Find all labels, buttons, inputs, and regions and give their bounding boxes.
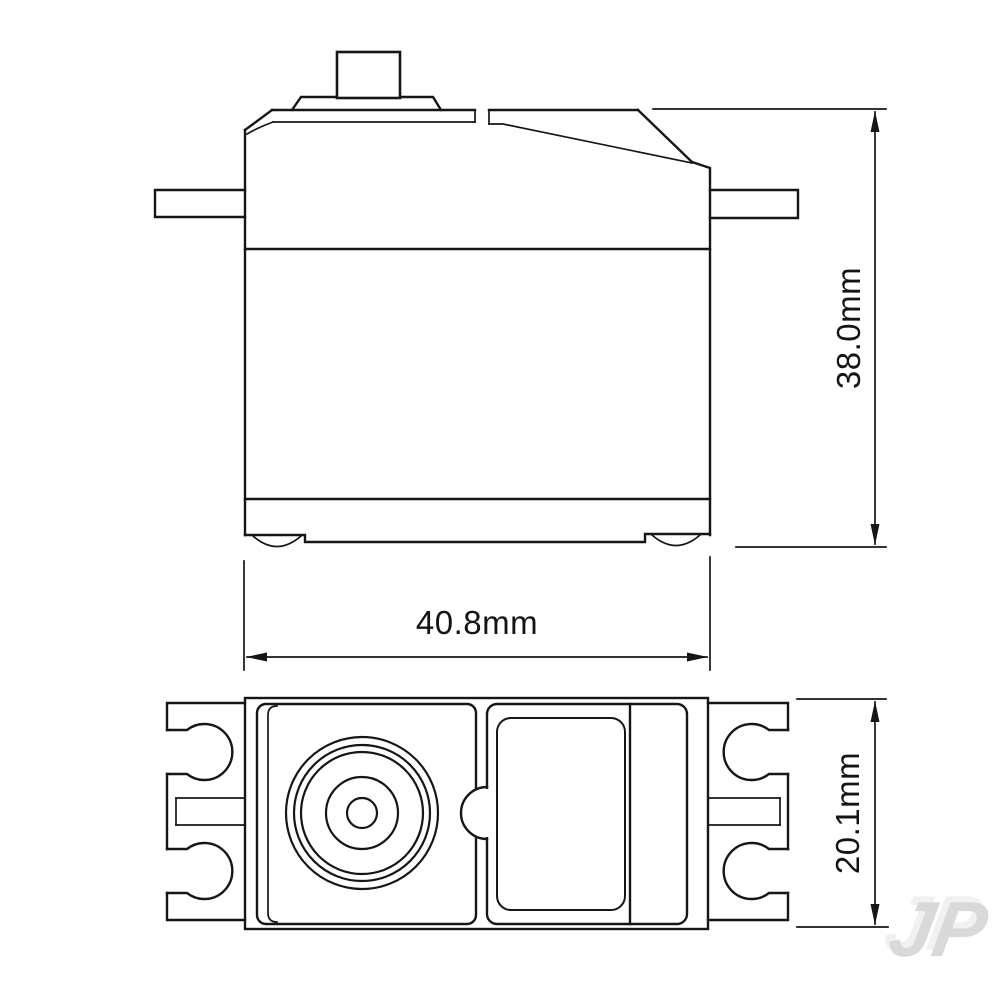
screw-keyhole-bottom-left [167,843,232,899]
dimension-label-depth: 20.1mm [829,752,866,874]
drawing-canvas: 38.0mm 40.8mm 20.1mm JP JP [0,0,1000,1000]
label-recess [497,718,625,910]
flange-right [708,703,788,920]
watermark-logo: JP JP [877,880,995,973]
mounting-tab-left [155,190,245,217]
flange-left-bottom [167,893,245,920]
body-bottom-edge [245,534,710,542]
bottom-foot-arc-right [652,535,700,546]
servo-dimension-drawing: 38.0mm 40.8mm 20.1mm JP JP [0,0,1000,1000]
top-view [167,698,788,929]
rear-cover [487,704,687,924]
watermark-text: JP [883,886,994,973]
arrowhead-up [871,701,880,722]
flange-right-top [708,703,788,730]
flange-left-top [167,703,245,730]
side-view [155,52,798,547]
arrowhead-down [871,524,880,545]
arrowhead-right [687,653,708,662]
dimension-width: 40.8mm [244,557,710,670]
dimension-depth: 20.1mm [797,699,888,927]
notch-mask [460,789,489,837]
dimension-height: 38.0mm [653,109,886,547]
screw-keyhole-bottom-right [724,843,788,899]
bottom-foot-arc-left [253,536,301,547]
dimension-label-width: 40.8mm [416,604,538,641]
output-gear-circles [286,737,438,889]
screw-keyhole-top-right [724,724,788,780]
gear-circle-1 [286,737,438,889]
dimension-label-height: 38.0mm [830,267,867,389]
arrowhead-up [871,111,880,132]
body-top-left-bevel-inner [247,122,273,134]
screw-keyhole-top-left [167,724,232,780]
arrowhead-down [871,904,880,925]
gear-circle-3 [301,752,423,874]
flange-left [167,703,245,920]
body-top-slant-inner [489,124,692,163]
body-right-edge [692,162,710,535]
gear-shaft-circle [347,798,377,828]
front-cover-inner-edge [268,706,277,922]
gear-circle-2 [294,745,430,881]
flange-right-bottom [708,893,788,920]
mounting-tab-right [710,190,798,218]
arrowhead-left [246,653,267,662]
gear-circle-4 [326,777,398,849]
output-spline [337,52,400,98]
body-top-left-bevel [245,110,272,130]
